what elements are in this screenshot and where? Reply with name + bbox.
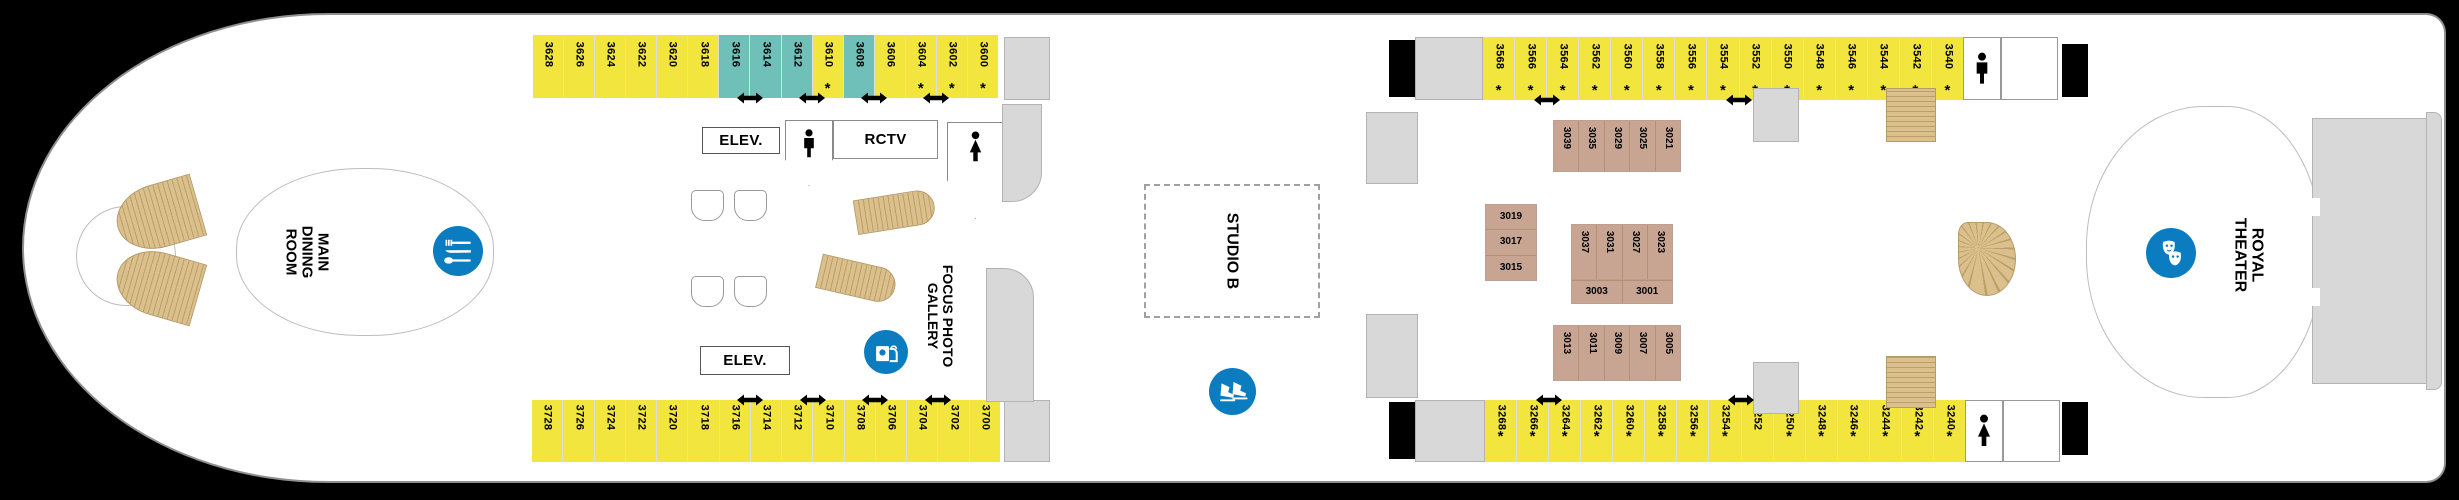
cabin-number: 3262 — [1591, 405, 1602, 431]
connecting-stateroom-arrow-icon — [925, 394, 951, 406]
cabin-number: 3540 — [1942, 44, 1953, 70]
cabin-number: 3242 — [1912, 405, 1923, 431]
cabin-3264[interactable]: 3264* — [1548, 400, 1580, 462]
cabin-number: 3600 — [977, 42, 988, 68]
cabin-3712[interactable]: 3712 — [781, 400, 812, 462]
cabin-3254[interactable]: 3254* — [1708, 400, 1740, 462]
cabin-number: 3712 — [792, 405, 803, 431]
service-room — [2003, 400, 2060, 462]
cabin-3604[interactable]: 3604* — [905, 35, 936, 98]
cabin-number: 3702 — [948, 405, 959, 431]
cabin-3622[interactable]: 3622 — [625, 35, 656, 98]
connecting-stateroom-arrow-icon — [737, 394, 763, 406]
cabin-number: 3017 — [1500, 237, 1522, 247]
stateroom-note-asterisk: * — [1786, 429, 1792, 444]
studio-b-wall-left-bottom — [986, 268, 1034, 402]
cabin-number: 3720 — [667, 405, 678, 431]
service-block — [1753, 88, 1799, 142]
cabin-3035[interactable]: 3035 — [1578, 121, 1603, 171]
stateroom-note-asterisk: * — [1848, 83, 1854, 98]
cabin-number: 3001 — [1636, 287, 1658, 297]
cabin-number: 3264 — [1559, 405, 1570, 431]
cabin-3015[interactable]: 3015 — [1486, 255, 1536, 280]
royal-theater-label: ROYAL THEATER — [2231, 218, 2266, 292]
cabin-3240[interactable]: 3240* — [1933, 400, 1965, 462]
cabin-3039[interactable]: 3039 — [1554, 121, 1578, 171]
cabin-number: 3039 — [1561, 127, 1571, 149]
cabin-3606[interactable]: 3606 — [874, 35, 905, 98]
stateroom-note-asterisk: * — [1592, 83, 1598, 98]
stateroom-note-asterisk: * — [1560, 83, 1566, 98]
cabin-number: 3248 — [1816, 405, 1827, 431]
service-block — [1004, 400, 1050, 462]
studio-b-wall-right-bottom — [1366, 314, 1418, 398]
deck-plan: MAIN DINING ROOM 36283626362436223620361… — [0, 0, 2459, 500]
cabin-3628[interactable]: 3628 — [533, 35, 563, 98]
cabin-number: 3606 — [884, 42, 895, 68]
cabin-number: 3544 — [1878, 44, 1889, 70]
cabin-number: 3027 — [1630, 231, 1640, 253]
cabin-number: 3608 — [853, 42, 864, 68]
elev-bottom-label: ELEV. — [723, 352, 766, 369]
connecting-stateroom-arrow-icon — [1534, 94, 1560, 106]
stateroom-note-asterisk: * — [1528, 83, 1534, 98]
elevator-lobby-bottom: ELEV. — [700, 346, 790, 375]
cabin-number: 3710 — [823, 405, 834, 431]
theater-masks-icon — [2146, 228, 2196, 278]
cabin-number: 3550 — [1782, 44, 1793, 70]
stateroom-note-asterisk: * — [1816, 83, 1822, 98]
cabin-number: 3268 — [1495, 405, 1506, 431]
cabin-3600[interactable]: 3600* — [967, 35, 998, 98]
cabin-number: 3007 — [1637, 332, 1647, 354]
cabin-3546[interactable]: 3546* — [1835, 37, 1867, 100]
cabin-3618[interactable]: 3618 — [687, 35, 718, 98]
stateroom-note-asterisk: * — [1658, 429, 1664, 444]
cabin-number: 3542 — [1910, 44, 1921, 70]
cabin-row-top-left: 3628362636243622362036183616361436123610… — [533, 35, 998, 98]
cabin-3608[interactable]: 3608 — [843, 35, 874, 98]
cabin-3722[interactable]: 3722 — [625, 400, 656, 462]
cabin-3558[interactable]: 3558* — [1642, 37, 1674, 100]
inner-cabin-strip-middle-lower: 30033001 — [1571, 280, 1673, 304]
cabin-3017[interactable]: 3017 — [1486, 229, 1536, 254]
cabin-3262[interactable]: 3262* — [1580, 400, 1612, 462]
cabin-number: 3626 — [574, 42, 585, 68]
elevator-car — [734, 190, 767, 221]
cabin-3266[interactable]: 3266* — [1516, 400, 1548, 462]
cabin-number: 3011 — [1587, 332, 1597, 354]
staircase-aft-top — [1886, 88, 1936, 142]
focus-photo-gallery-label: FOCUS PHOTO GALLERY — [925, 265, 955, 367]
cabin-number: 3554 — [1717, 44, 1728, 70]
cabin-3626[interactable]: 3626 — [563, 35, 594, 98]
stateroom-note-asterisk: * — [1626, 429, 1632, 444]
stateroom-note-asterisk: * — [1656, 83, 1662, 98]
cabin-3037[interactable]: 3037 — [1572, 225, 1596, 279]
cabin-number: 3560 — [1621, 44, 1632, 70]
cabin-3716[interactable]: 3716 — [719, 400, 750, 462]
stateroom-note-asterisk: * — [1722, 429, 1728, 444]
cabin-3248[interactable]: 3248* — [1805, 400, 1837, 462]
stateroom-note-asterisk: * — [825, 81, 831, 96]
cabin-3718[interactable]: 3718 — [687, 400, 718, 462]
elevator-car — [734, 276, 767, 307]
cabin-number: 3728 — [542, 405, 553, 431]
cabin-number: 3003 — [1586, 287, 1608, 297]
cabin-number: 3031 — [1604, 231, 1614, 253]
cabin-number: 3612 — [791, 42, 802, 68]
cabin-number: 3722 — [635, 405, 646, 431]
cabin-row-bottom-right: 3268*3266*3264*3262*3260*3258*3256*3254*… — [1485, 400, 1965, 462]
stateroom-note-asterisk: * — [1594, 429, 1600, 444]
cabin-number: 3556 — [1685, 44, 1696, 70]
cabin-number: 3244 — [1880, 405, 1891, 431]
ice-skating-icon — [1209, 368, 1256, 415]
cabin-3025[interactable]: 3025 — [1629, 121, 1654, 171]
connecting-stateroom-arrow-icon — [737, 92, 763, 104]
cabin-number: 3023 — [1655, 231, 1665, 253]
inner-cabin-strip-left: 301930173015 — [1485, 204, 1537, 281]
stateroom-note-asterisk: * — [1914, 429, 1920, 444]
cabin-3702[interactable]: 3702 — [937, 400, 968, 462]
elevator-car — [691, 190, 724, 221]
stateroom-note-asterisk: * — [1562, 429, 1568, 444]
service-block — [1753, 362, 1799, 414]
connecting-stateroom-arrow-icon — [1728, 394, 1754, 406]
connecting-stateroom-arrow-icon — [923, 92, 949, 104]
cabin-3019[interactable]: 3019 — [1486, 205, 1536, 229]
cabin-3031[interactable]: 3031 — [1596, 225, 1621, 279]
cabin-3023[interactable]: 3023 — [1647, 225, 1672, 279]
cabin-3246[interactable]: 3246* — [1837, 400, 1869, 462]
cabin-number: 3714 — [760, 405, 771, 431]
cabin-3021[interactable]: 3021 — [1655, 121, 1680, 171]
connecting-stateroom-arrow-icon — [1536, 394, 1562, 406]
stateroom-note-asterisk: * — [1624, 83, 1630, 98]
cabin-3714[interactable]: 3714 — [750, 400, 781, 462]
cabin-3724[interactable]: 3724 — [594, 400, 625, 462]
stateroom-note-asterisk: * — [1530, 429, 1536, 444]
spiral-staircase — [1958, 222, 2016, 296]
cabin-number: 3618 — [698, 42, 709, 68]
womens-restroom-icon — [1974, 414, 1994, 448]
rctv-studio: RCTV — [833, 120, 938, 159]
cabin-number: 3009 — [1612, 332, 1622, 354]
cabin-number: 3610 — [822, 42, 833, 68]
cabin-number: 3015 — [1500, 263, 1522, 273]
cabin-number: 3718 — [698, 405, 709, 431]
cabin-number: 3005 — [1663, 332, 1673, 354]
cabin-3560[interactable]: 3560* — [1610, 37, 1642, 100]
womens-restroom-icon — [966, 131, 985, 218]
cabin-number: 3019 — [1500, 212, 1522, 222]
cabin-number: 3614 — [760, 42, 771, 68]
shaft-block — [2062, 44, 2088, 97]
studio-b-wall-right-top — [1366, 112, 1418, 184]
cabin-number: 3604 — [915, 42, 926, 68]
cabin-3548[interactable]: 3548* — [1803, 37, 1835, 100]
dining-icon — [433, 226, 483, 276]
cabin-number: 3564 — [1557, 44, 1568, 70]
cabin-number: 3548 — [1814, 44, 1825, 70]
stage-notch — [2306, 198, 2320, 216]
connecting-stateroom-arrow-icon — [861, 92, 887, 104]
cabin-number: 3706 — [886, 405, 897, 431]
service-block — [1415, 37, 1483, 100]
stateroom-note-asterisk: * — [1850, 429, 1856, 444]
stateroom-note-asterisk: * — [1882, 429, 1888, 444]
cabin-number: 3025 — [1637, 127, 1647, 149]
cabin-number: 3620 — [667, 42, 678, 68]
cabin-number: 3602 — [946, 42, 957, 68]
cabin-3726[interactable]: 3726 — [562, 400, 593, 462]
cabin-number: 3708 — [854, 405, 865, 431]
cabin-3011[interactable]: 3011 — [1578, 326, 1603, 380]
cabin-3620[interactable]: 3620 — [656, 35, 687, 98]
connecting-stateroom-arrow-icon — [1726, 94, 1752, 106]
cabin-3706[interactable]: 3706 — [875, 400, 906, 462]
cabin-3027[interactable]: 3027 — [1622, 225, 1647, 279]
stateroom-note-asterisk: * — [1946, 429, 1952, 444]
cabin-number: 3724 — [604, 405, 615, 431]
shaft-block — [1389, 40, 1415, 97]
cabin-number: 3726 — [573, 405, 584, 431]
cabin-3566[interactable]: 3566* — [1514, 37, 1546, 100]
cabin-number: 3266 — [1527, 405, 1538, 431]
connecting-stateroom-arrow-icon — [800, 394, 826, 406]
cabin-3029[interactable]: 3029 — [1604, 121, 1629, 171]
cabin-number: 3258 — [1655, 405, 1666, 431]
stern-structure — [2426, 112, 2442, 390]
cabin-3005[interactable]: 3005 — [1655, 326, 1680, 380]
royal-theater-outline — [2086, 106, 2322, 398]
cabin-3003[interactable]: 3003 — [1572, 281, 1622, 303]
cabin-3704[interactable]: 3704 — [906, 400, 937, 462]
cabin-3007[interactable]: 3007 — [1629, 326, 1654, 380]
cabin-number: 3035 — [1587, 127, 1597, 149]
cabin-number: 3254 — [1719, 405, 1730, 431]
service-room — [2001, 37, 2058, 100]
cabin-number: 3716 — [729, 405, 740, 431]
studio-b-wall-left-top — [1002, 104, 1042, 202]
cabin-number: 3240 — [1944, 405, 1955, 431]
cabin-3562[interactable]: 3562* — [1578, 37, 1610, 100]
cabin-3564[interactable]: 3564* — [1546, 37, 1578, 100]
cabin-3720[interactable]: 3720 — [656, 400, 687, 462]
cabin-3001[interactable]: 3001 — [1622, 281, 1673, 303]
cabin-number: 3704 — [917, 405, 928, 431]
cabin-3242[interactable]: 3242* — [1901, 400, 1933, 462]
photo-gallery-icon — [864, 330, 908, 374]
theater-stage — [2312, 118, 2432, 384]
shaft-block — [2062, 402, 2088, 455]
cabin-3700[interactable]: 3700 — [969, 400, 1000, 462]
cabin-3260[interactable]: 3260* — [1612, 400, 1644, 462]
main-dining-room-label: MAIN DINING ROOM — [282, 226, 331, 279]
cabin-3258[interactable]: 3258* — [1644, 400, 1676, 462]
elevator-car — [691, 276, 724, 307]
cabin-3610[interactable]: 3610* — [812, 35, 843, 98]
cabin-3614[interactable]: 3614 — [749, 35, 780, 98]
mens-restroom-icon — [800, 129, 818, 185]
cabin-number: 3021 — [1663, 127, 1673, 149]
cabin-3256[interactable]: 3256* — [1676, 400, 1708, 462]
mens-restroom-icon — [1972, 52, 1992, 86]
studio-b-label: STUDIO B — [1223, 213, 1240, 289]
cabin-number: 3624 — [605, 42, 616, 68]
cabin-number: 3566 — [1525, 44, 1536, 70]
elevator-lobby-top: ELEV. — [702, 127, 780, 154]
service-block — [1004, 37, 1050, 100]
cabin-3624[interactable]: 3624 — [594, 35, 625, 98]
cabin-3616[interactable]: 3616 — [718, 35, 749, 98]
cabin-number: 3029 — [1612, 127, 1622, 149]
connecting-stateroom-arrow-icon — [862, 394, 888, 406]
cabin-number: 3568 — [1493, 44, 1504, 70]
cabin-number: 3256 — [1687, 405, 1698, 431]
cabin-number: 3013 — [1561, 332, 1571, 354]
stateroom-note-asterisk: * — [1688, 83, 1694, 98]
cabin-3268[interactable]: 3268* — [1485, 400, 1516, 462]
cabin-3710[interactable]: 3710 — [812, 400, 843, 462]
cabin-number: 3558 — [1653, 44, 1664, 70]
cabin-number: 3700 — [979, 405, 990, 431]
cabin-number: 3037 — [1579, 231, 1589, 253]
stateroom-note-asterisk: * — [1496, 83, 1502, 98]
staircase-aft-bottom — [1886, 356, 1936, 408]
stateroom-note-asterisk: * — [1498, 429, 1504, 444]
elev-top-label: ELEV. — [719, 132, 762, 149]
cabin-3556[interactable]: 3556* — [1674, 37, 1706, 100]
cabin-number: 3562 — [1589, 44, 1600, 70]
cabin-3244[interactable]: 3244* — [1869, 400, 1901, 462]
inner-cabin-strip-top: 30393035302930253021 — [1553, 120, 1681, 172]
cabin-3728[interactable]: 3728 — [532, 400, 562, 462]
stateroom-note-asterisk: * — [949, 81, 955, 96]
rctv-label: RCTV — [864, 131, 906, 148]
cabin-row-bottom-left: 3728372637243722372037183716371437123710… — [532, 400, 1000, 462]
cabin-3013[interactable]: 3013 — [1554, 326, 1578, 380]
womens-restroom-aft — [1965, 400, 2003, 462]
cabin-3554[interactable]: 3554* — [1706, 37, 1738, 100]
stage-notch — [2306, 288, 2320, 306]
cabin-number: 3622 — [636, 42, 647, 68]
stateroom-note-asterisk: * — [1818, 429, 1824, 444]
stateroom-note-asterisk: * — [980, 81, 986, 96]
cabin-number: 3552 — [1750, 44, 1761, 70]
cabin-number: 3628 — [543, 42, 554, 68]
cabin-3708[interactable]: 3708 — [844, 400, 875, 462]
connecting-stateroom-arrow-icon — [799, 92, 825, 104]
cabin-number: 3260 — [1623, 405, 1634, 431]
cabin-number: 3616 — [729, 42, 740, 68]
cabin-3568[interactable]: 3568* — [1483, 37, 1514, 100]
inner-cabin-strip-middle: 3037303130273023 — [1571, 224, 1673, 280]
cabin-3009[interactable]: 3009 — [1604, 326, 1629, 380]
shaft-block — [1389, 402, 1415, 459]
cabin-number: 3246 — [1848, 405, 1859, 431]
mens-restroom-aft — [1963, 37, 2001, 100]
cabin-number: 3546 — [1846, 44, 1857, 70]
stateroom-note-asterisk: * — [1944, 83, 1950, 98]
cabin-3612[interactable]: 3612 — [781, 35, 812, 98]
stateroom-note-asterisk: * — [1690, 429, 1696, 444]
inner-cabin-strip-bottom: 30133011300930073005 — [1553, 325, 1681, 381]
cabin-3602[interactable]: 3602* — [936, 35, 967, 98]
service-block — [1415, 400, 1485, 462]
